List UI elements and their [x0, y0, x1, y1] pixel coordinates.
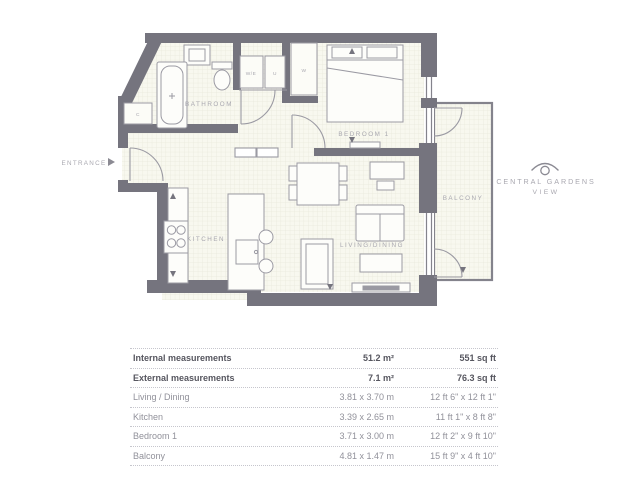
sink [184, 45, 210, 65]
kitchen-label: KITCHEN [187, 236, 225, 243]
toilet [212, 62, 232, 90]
eye-icon [532, 164, 558, 175]
central-gardens-view-logo: CENTRAL GARDENS VIEW [496, 164, 595, 197]
hob [164, 221, 188, 253]
internal-measurements-row: Internal measurements 51.2 m² 551 sq ft [130, 348, 498, 369]
measurements-table: Internal measurements 51.2 m² 551 sq ft … [130, 348, 498, 466]
entrance-marker: ENTRANCE [61, 158, 115, 167]
row-metric-value: 3.81 x 3.70 m [264, 392, 394, 402]
wardrobe-label: W [301, 68, 306, 74]
dining-table [289, 163, 347, 205]
living-dining-label: LIVING/DINING [340, 242, 404, 249]
row-metric-value: 4.81 x 1.47 m [264, 451, 394, 461]
balcony-label: BALCONY [443, 195, 484, 202]
balcony-row: Balcony 4.81 x 1.47 m 15 ft 9" x 4 ft 10… [130, 447, 498, 467]
sofa [356, 205, 404, 241]
external-measurements-row: External measurements 7.1 m² 76.3 sq ft [130, 369, 498, 389]
row-label: Internal measurements [130, 353, 264, 363]
row-label: Balcony [130, 451, 264, 461]
floorplan-page: BATHROOM BEDROOM 1 KITCHEN LIVING/DINING… [0, 0, 632, 491]
bedroom-bench [350, 142, 380, 148]
row-metric-value: 3.71 x 3.00 m [264, 431, 394, 441]
coffee-table [360, 254, 402, 272]
bedroom1-label: BEDROOM 1 [338, 131, 389, 138]
row-imperial-value: 11 ft 1" x 8 ft 8" [394, 412, 498, 422]
row-metric-value: 3.39 x 2.65 m [264, 412, 394, 422]
row-label: Living / Dining [130, 392, 264, 402]
kitchen-row: Kitchen 3.39 x 2.65 m 11 ft 1" x 8 ft 8" [130, 408, 498, 428]
row-label: Bedroom 1 [130, 431, 264, 441]
utility-closet-label: U [273, 71, 277, 77]
row-imperial-value: 12 ft 2" x 9 ft 10" [394, 431, 498, 441]
kitchen-island [228, 194, 264, 290]
living-dining-row: Living / Dining 3.81 x 3.70 m 12 ft 6" x… [130, 388, 498, 408]
logo-line1: CENTRAL GARDENS [496, 177, 595, 186]
logo-line2: VIEW [533, 189, 560, 196]
stool [259, 230, 273, 244]
bathtub [157, 62, 187, 128]
entrance-arrow-icon [108, 158, 115, 166]
row-imperial-value: 551 sq ft [394, 353, 498, 363]
row-label: External measurements [130, 373, 264, 383]
bedroom1-row: Bedroom 1 3.71 x 3.00 m 12 ft 2" x 9 ft … [130, 427, 498, 447]
row-imperial-value: 15 ft 9" x 4 ft 10" [394, 451, 498, 461]
stool [259, 259, 273, 273]
row-metric-value: 51.2 m² [264, 353, 394, 363]
bathroom-label: BATHROOM [185, 101, 233, 108]
bed [327, 45, 403, 122]
chaise-cushion [306, 244, 328, 284]
tv-unit [352, 283, 410, 292]
balcony-floor [434, 103, 492, 280]
row-label: Kitchen [130, 412, 264, 422]
floorplan-svg: BATHROOM BEDROOM 1 KITCHEN LIVING/DINING… [0, 0, 632, 345]
row-imperial-value: 12 ft 6" x 12 ft 1" [394, 392, 498, 402]
row-imperial-value: 76.3 sq ft [394, 373, 498, 383]
row-metric-value: 7.1 m² [264, 373, 394, 383]
entrance-label: ENTRANCE [61, 160, 106, 167]
washer-closet-label: W/E [246, 71, 257, 77]
cupboard-label: C [136, 112, 140, 118]
